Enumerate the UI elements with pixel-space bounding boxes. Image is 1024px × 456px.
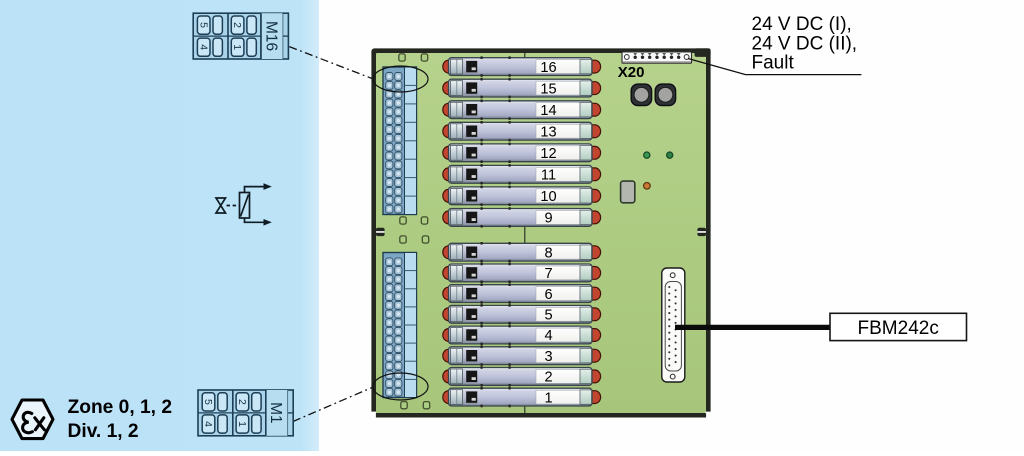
svg-text:1: 1 (544, 390, 552, 406)
svg-text:11: 11 (541, 168, 556, 184)
svg-text:2: 2 (544, 370, 552, 386)
svg-text:24 V DC (I),: 24 V DC (I), (752, 14, 852, 35)
svg-text:8: 8 (544, 245, 552, 261)
svg-text:1: 1 (236, 421, 248, 427)
svg-text:12: 12 (540, 146, 556, 162)
svg-text:15: 15 (540, 81, 556, 97)
svg-text:2: 2 (236, 399, 248, 405)
svg-text:5: 5 (197, 22, 209, 28)
svg-text:5: 5 (544, 308, 552, 324)
svg-text:16: 16 (540, 60, 556, 76)
svg-text:1: 1 (231, 44, 243, 50)
svg-text:M16: M16 (262, 21, 279, 51)
svg-text:7: 7 (544, 266, 552, 282)
svg-text:9: 9 (544, 211, 552, 227)
svg-text:X20: X20 (618, 64, 645, 81)
svg-text:4: 4 (544, 328, 552, 344)
svg-text:4: 4 (197, 44, 209, 50)
svg-text:Fault: Fault (752, 53, 795, 74)
svg-text:2: 2 (231, 22, 243, 28)
svg-text:Div. 1, 2: Div. 1, 2 (68, 421, 139, 442)
svg-text:M1: M1 (267, 402, 284, 424)
svg-text:6: 6 (544, 287, 552, 303)
svg-text:5: 5 (202, 399, 214, 405)
svg-text:FBM242c: FBM242c (858, 318, 939, 339)
svg-text:24 V DC (II),: 24 V DC (II), (752, 33, 858, 54)
svg-text:14: 14 (540, 103, 556, 119)
svg-text:3: 3 (544, 349, 552, 365)
svg-text:13: 13 (540, 124, 556, 140)
svg-text:4: 4 (202, 421, 214, 427)
svg-text:Zone 0, 1, 2: Zone 0, 1, 2 (68, 397, 173, 418)
svg-text:10: 10 (540, 189, 556, 205)
